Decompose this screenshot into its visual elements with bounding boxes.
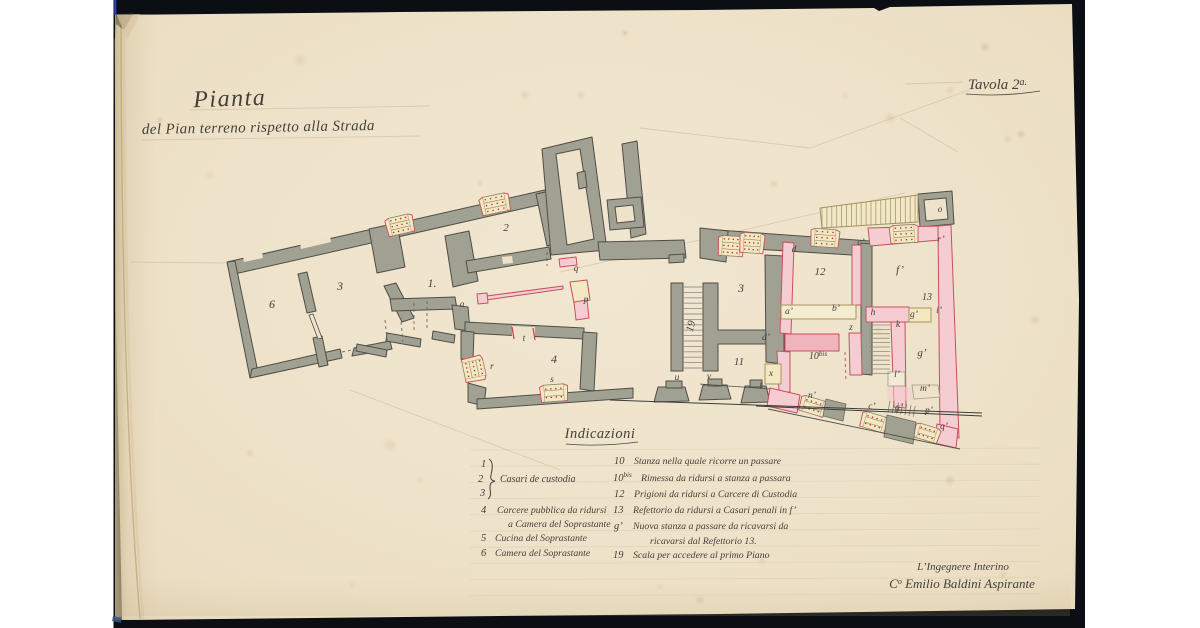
svg-text:3: 3 [336,279,343,293]
svg-text:19: 19 [613,550,624,561]
svg-text:u: u [675,373,680,383]
svg-text:n’: n’ [808,391,816,401]
svg-text:Refettorio da ridursi a Casari: Refettorio da ridursi a Casari penali in… [632,505,796,516]
svg-text:1.: 1. [428,276,437,290]
svg-text:Scala per accedere al primo Pi: Scala per accedere al primo Piano [633,550,770,561]
svg-text:d: d [792,245,797,255]
svg-text:Cucina del Soprastante: Cucina del Soprastante [495,533,588,544]
svg-text:Carcere pubblica da ridursi: Carcere pubblica da ridursi [497,505,607,516]
svg-text:Co Emilio Baldini Aspirante: Co Emilio Baldini Aspirante [889,576,1035,591]
svg-text:Nuova stanza a passare da rica: Nuova stanza a passare da ricavarsi da [632,521,788,532]
svg-text:13: 13 [922,292,932,303]
svg-text:4: 4 [551,352,557,366]
svg-text:6: 6 [481,548,487,559]
svg-text:t: t [760,381,763,391]
svg-text:g’: g’ [614,521,623,532]
svg-text:Tavola 2a.: Tavola 2a. [968,77,1027,93]
svg-text:4: 4 [481,505,487,516]
svg-text:l’: l’ [894,370,900,380]
svg-text:L’Ingegnere Interino: L’Ingegnere Interino [916,561,1009,573]
svg-text:i’: i’ [936,306,942,316]
svg-text:d’: d’ [762,333,770,343]
svg-text:a Camera del Soprastante: a Camera del Soprastante [508,519,611,530]
svg-text:g’: g’ [910,310,918,320]
svg-text:3: 3 [737,281,744,295]
svg-text:2: 2 [478,474,484,485]
svg-text:t: t [523,334,526,344]
svg-text:Indicazioni: Indicazioni [564,426,636,442]
svg-text:12: 12 [614,489,625,500]
svg-text:11: 11 [734,356,744,368]
svg-text:a: a [460,300,465,310]
svg-text:g’: g’ [917,347,927,359]
svg-text:3: 3 [479,488,485,499]
svg-text:13: 13 [613,505,624,516]
svg-text:m’: m’ [920,384,930,394]
svg-text:Camera del Soprastante: Camera del Soprastante [495,548,591,559]
svg-text:s: s [550,375,554,385]
svg-text:Rimessa da ridursi a stanza a: Rimessa da ridursi a stanza a passara [640,473,791,484]
svg-text:c’: c’ [857,238,864,248]
svg-text:r’: r’ [937,235,944,245]
svg-text:6: 6 [269,297,275,311]
svg-text:12: 12 [815,266,827,278]
svg-text:q’: q’ [940,422,948,432]
svg-text:o: o [938,204,943,214]
svg-text:p: p [583,295,589,305]
svg-text:ricavarsi dal Refettorio 13.: ricavarsi dal Refettorio 13. [650,536,757,547]
svg-text:1: 1 [481,459,486,470]
svg-text:Pianta: Pianta [192,85,267,114]
svg-text:b’: b’ [832,304,840,314]
svg-text:a’: a’ [785,307,793,317]
svg-text:Prigioni da ridursi a Carcere: Prigioni da ridursi a Carcere di Custodi… [633,489,797,500]
svg-text:f’: f’ [896,264,904,276]
svg-text:10: 10 [614,456,625,467]
svg-text:Casari de custodia: Casari de custodia [500,474,576,485]
svg-text:Stanza nella quale ricorre un: Stanza nella quale ricorre un passare [634,456,782,467]
svg-text:q: q [574,264,579,274]
svg-text:z: z [848,323,853,333]
svg-text:h: h [871,308,876,318]
svg-text:c’: c’ [868,402,875,412]
svg-text:x: x [768,369,774,379]
svg-text:2: 2 [503,222,509,234]
svg-text:g’: g’ [895,403,903,413]
svg-text:5: 5 [481,533,486,544]
svg-text:p’: p’ [924,406,933,416]
svg-text:r: r [490,362,494,372]
